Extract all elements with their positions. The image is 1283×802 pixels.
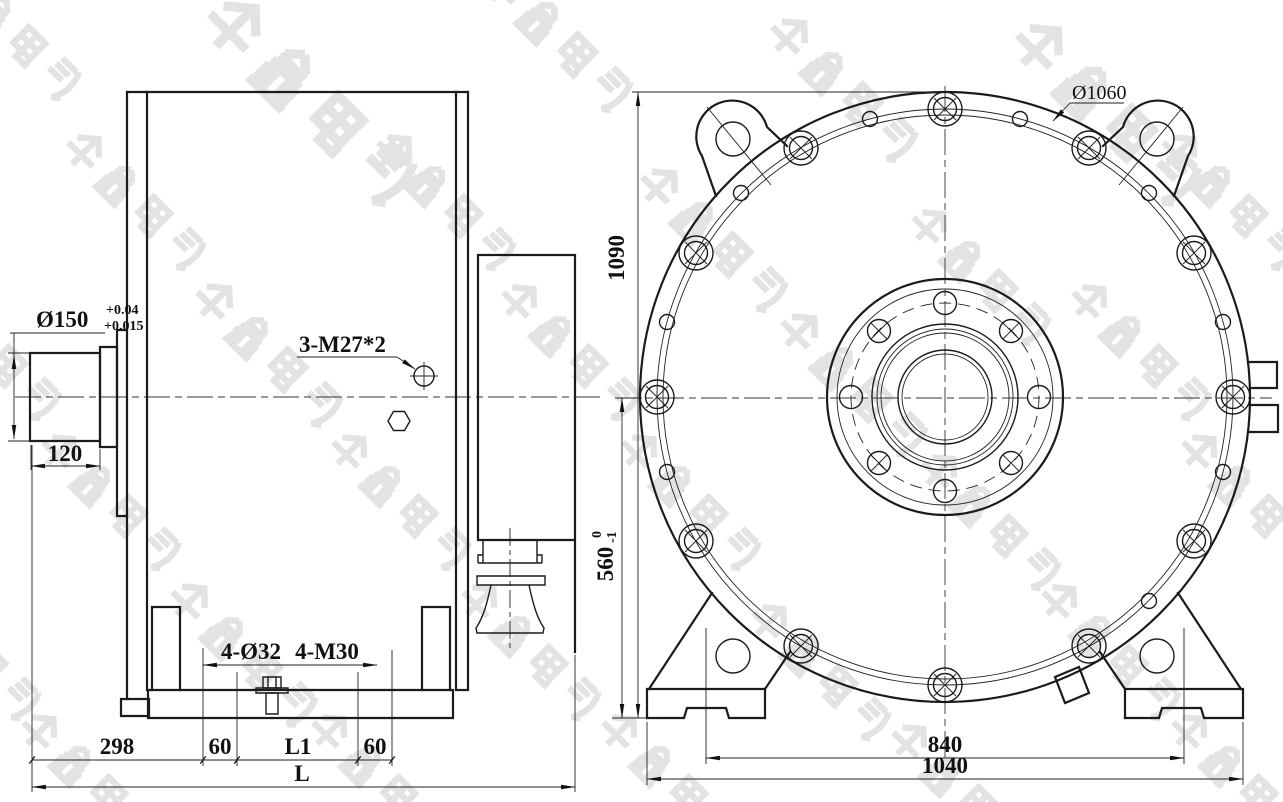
front-view: 1090 560 0 -1 840 1040 Ø1060 (590, 82, 1278, 785)
bearing-cap (117, 330, 127, 516)
bolt-circle-label: Ø1060 (1072, 82, 1126, 104)
chain-dim-298: 298 (100, 734, 135, 759)
foot-left (647, 593, 790, 718)
shaft-length-label: 120 (48, 441, 83, 466)
chain-dim-60a: 60 (209, 734, 232, 759)
dimension-shaft-length: 120 (31, 441, 100, 470)
chain-dim-60b: 60 (364, 734, 387, 759)
height-label: 1090 (604, 235, 629, 281)
foot-hole-right (1140, 639, 1174, 673)
foot-holes-label-1: 4-Ø32 (221, 639, 281, 664)
foot-hole-left (716, 639, 750, 673)
dimension-center-height: 560 0 -1 (590, 398, 642, 718)
center-height-label: 560 (593, 547, 618, 582)
drain-tab (1055, 667, 1089, 703)
foot-width-label: 1040 (922, 753, 968, 778)
shaft-dia-label: Ø150 (36, 307, 88, 332)
dimension-shaft-diameter: Ø150 +0.04 +0.015 (8, 303, 143, 441)
overall-length-label: L (294, 761, 309, 786)
shaft-dia-tol-lower: +0.015 (104, 319, 143, 334)
callout-foot-holes: 4-Ø32 4-M30 (203, 639, 377, 665)
engineering-drawing: Ø150 +0.04 +0.015 120 3-M27*2 4-Ø32 4-M3… (0, 0, 1283, 802)
lifting-lug-left (696, 101, 787, 196)
callout-ring-screws: 3-M27*2 (297, 332, 415, 369)
dimension-overall-length: L (32, 655, 575, 792)
chain-dim-L1: L1 (285, 734, 312, 759)
center-height-tol-upper: 0 (590, 531, 605, 538)
ring-screws-label: 3-M27*2 (299, 332, 386, 357)
foot-holes-label-2: 4-M30 (295, 639, 359, 664)
drawing-canvas: Ø150 +0.04 +0.015 120 3-M27*2 4-Ø32 4-M3… (0, 0, 1283, 802)
flange-foot (121, 699, 149, 716)
center-height-tol-lower: -1 (605, 531, 620, 543)
shaft-dia-tol-upper: +0.04 (106, 303, 138, 318)
rear-plate (456, 92, 468, 690)
terminal-tabs (1250, 362, 1278, 432)
hex-plug (388, 412, 410, 431)
watermark (0, 0, 1283, 802)
